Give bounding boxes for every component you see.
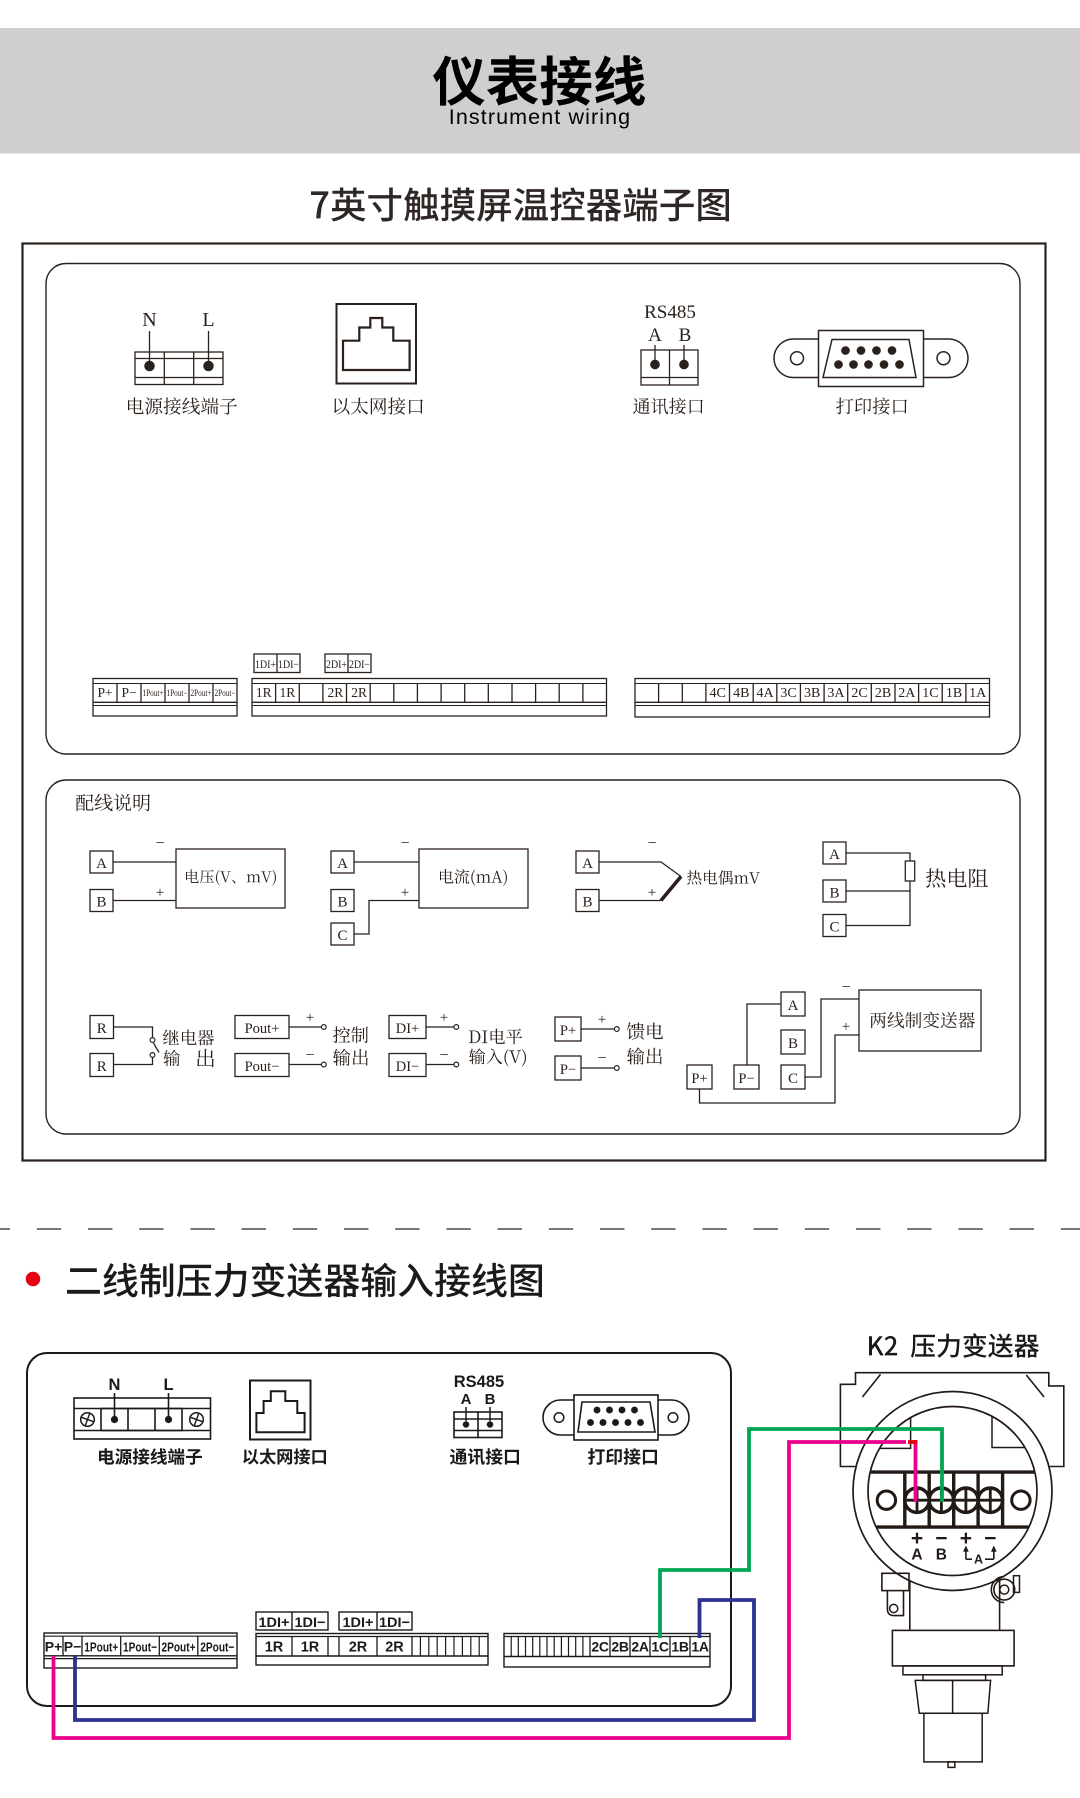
svg-text:B: B — [788, 1036, 798, 1052]
svg-text:P−: P− — [738, 1071, 754, 1087]
svg-text:RS485: RS485 — [644, 302, 696, 323]
svg-text:DI+: DI+ — [396, 1021, 419, 1037]
svg-text:2DI−: 2DI− — [349, 659, 370, 671]
svg-text:1R: 1R — [301, 1640, 320, 1656]
svg-text:A: A — [337, 856, 348, 872]
svg-text:−: − — [597, 1050, 606, 1067]
svg-text:Pout−: Pout− — [245, 1059, 280, 1075]
svg-text:1C: 1C — [651, 1639, 668, 1655]
svg-text:R: R — [97, 1059, 107, 1075]
svg-text:2Pout−: 2Pout− — [215, 688, 236, 698]
svg-text:2R: 2R — [349, 1640, 368, 1656]
svg-text:P−: P− — [64, 1639, 82, 1655]
svg-text:B: B — [96, 895, 106, 911]
svg-text:1B: 1B — [671, 1639, 688, 1655]
svg-text:P+: P+ — [691, 1071, 707, 1087]
svg-text:1DI−: 1DI− — [295, 1614, 326, 1630]
svg-text:Instrument wiring: Instrument wiring — [449, 105, 631, 129]
svg-text:+: + — [401, 885, 409, 901]
svg-text:+: + — [440, 1010, 448, 1026]
svg-text:B: B — [829, 886, 839, 902]
svg-text:A: A — [648, 325, 662, 346]
svg-text:+: + — [598, 1012, 606, 1028]
svg-text:A: A — [829, 847, 840, 863]
svg-text:1C: 1C — [922, 686, 938, 701]
svg-text:N: N — [109, 1376, 121, 1394]
svg-text:3B: 3B — [804, 686, 820, 701]
svg-text:2Pout+: 2Pout+ — [162, 1640, 196, 1655]
svg-text:B: B — [485, 1391, 496, 1408]
svg-text:2B: 2B — [875, 686, 891, 701]
svg-text:1A: 1A — [969, 686, 987, 701]
svg-text:2C: 2C — [591, 1639, 608, 1655]
svg-text:A: A — [461, 1391, 472, 1408]
svg-text:P+: P+ — [97, 685, 112, 700]
svg-text:B: B — [582, 895, 592, 911]
svg-text:1DI−: 1DI− — [278, 659, 299, 671]
svg-text:3A: 3A — [827, 686, 845, 701]
svg-text:B: B — [337, 895, 347, 911]
svg-text:P−: P− — [560, 1062, 576, 1078]
svg-text:A: A — [96, 856, 107, 872]
svg-text:+: + — [306, 1010, 314, 1026]
svg-text:2R: 2R — [385, 1640, 404, 1656]
svg-text:P−: P− — [121, 685, 136, 700]
svg-text:2Pout−: 2Pout− — [200, 1640, 234, 1655]
svg-text:−: − — [305, 1047, 314, 1064]
svg-text:+: + — [156, 885, 164, 901]
svg-text:3C: 3C — [780, 686, 796, 701]
svg-text:2B: 2B — [611, 1639, 628, 1655]
svg-text:4A: 4A — [756, 686, 774, 701]
svg-text:1B: 1B — [946, 686, 962, 701]
svg-text:1Pout+: 1Pout+ — [84, 1640, 118, 1655]
svg-text:C: C — [788, 1071, 798, 1087]
svg-text:A: A — [788, 998, 799, 1014]
svg-text:4B: 4B — [733, 686, 749, 701]
svg-text:L: L — [163, 1376, 173, 1394]
svg-text:1Pout+: 1Pout+ — [143, 688, 164, 698]
svg-text:1DI−: 1DI− — [379, 1614, 410, 1630]
svg-text:+: + — [842, 1019, 850, 1035]
svg-text:2A: 2A — [631, 1639, 648, 1655]
svg-text:P+: P+ — [45, 1639, 63, 1655]
svg-text:RS485: RS485 — [454, 1373, 504, 1391]
svg-text:2R: 2R — [328, 685, 344, 700]
svg-text:A: A — [582, 856, 593, 872]
svg-text:B: B — [936, 1547, 947, 1564]
svg-text:4C: 4C — [710, 686, 726, 701]
svg-text:1Pout−: 1Pout− — [167, 688, 188, 698]
svg-text:1R: 1R — [265, 1640, 284, 1656]
svg-text:1Pout−: 1Pout− — [123, 1640, 157, 1655]
svg-text:1R: 1R — [280, 685, 296, 700]
svg-text:−: − — [155, 835, 164, 852]
svg-text:1DI+: 1DI+ — [343, 1614, 374, 1630]
svg-text:2A: 2A — [898, 686, 916, 701]
svg-text:2R: 2R — [351, 685, 367, 700]
svg-text:+: + — [648, 885, 656, 901]
svg-text:A: A — [911, 1547, 922, 1564]
svg-text:1DI+: 1DI+ — [255, 659, 276, 671]
svg-text:A: A — [974, 1553, 983, 1567]
svg-text:DI−: DI− — [396, 1059, 419, 1075]
svg-text:B: B — [679, 325, 692, 346]
svg-text:Pout+: Pout+ — [245, 1021, 280, 1037]
svg-text:−: − — [841, 979, 850, 996]
svg-text:P+: P+ — [560, 1023, 576, 1039]
svg-text:−: − — [400, 835, 409, 852]
svg-text:−: − — [439, 1047, 448, 1064]
svg-text:L: L — [202, 309, 214, 331]
svg-text:2DI+: 2DI+ — [326, 659, 347, 671]
svg-text:C: C — [829, 920, 839, 936]
svg-text:2C: 2C — [851, 686, 867, 701]
svg-text:−: − — [984, 1527, 996, 1550]
svg-text:1R: 1R — [256, 685, 272, 700]
svg-text:−: − — [647, 835, 656, 852]
svg-text:1A: 1A — [691, 1639, 708, 1655]
svg-text:2Pout+: 2Pout+ — [191, 688, 212, 698]
svg-text:N: N — [142, 309, 156, 331]
svg-text:1DI+: 1DI+ — [259, 1614, 290, 1630]
svg-text:R: R — [97, 1021, 107, 1037]
svg-text:C: C — [337, 928, 347, 944]
